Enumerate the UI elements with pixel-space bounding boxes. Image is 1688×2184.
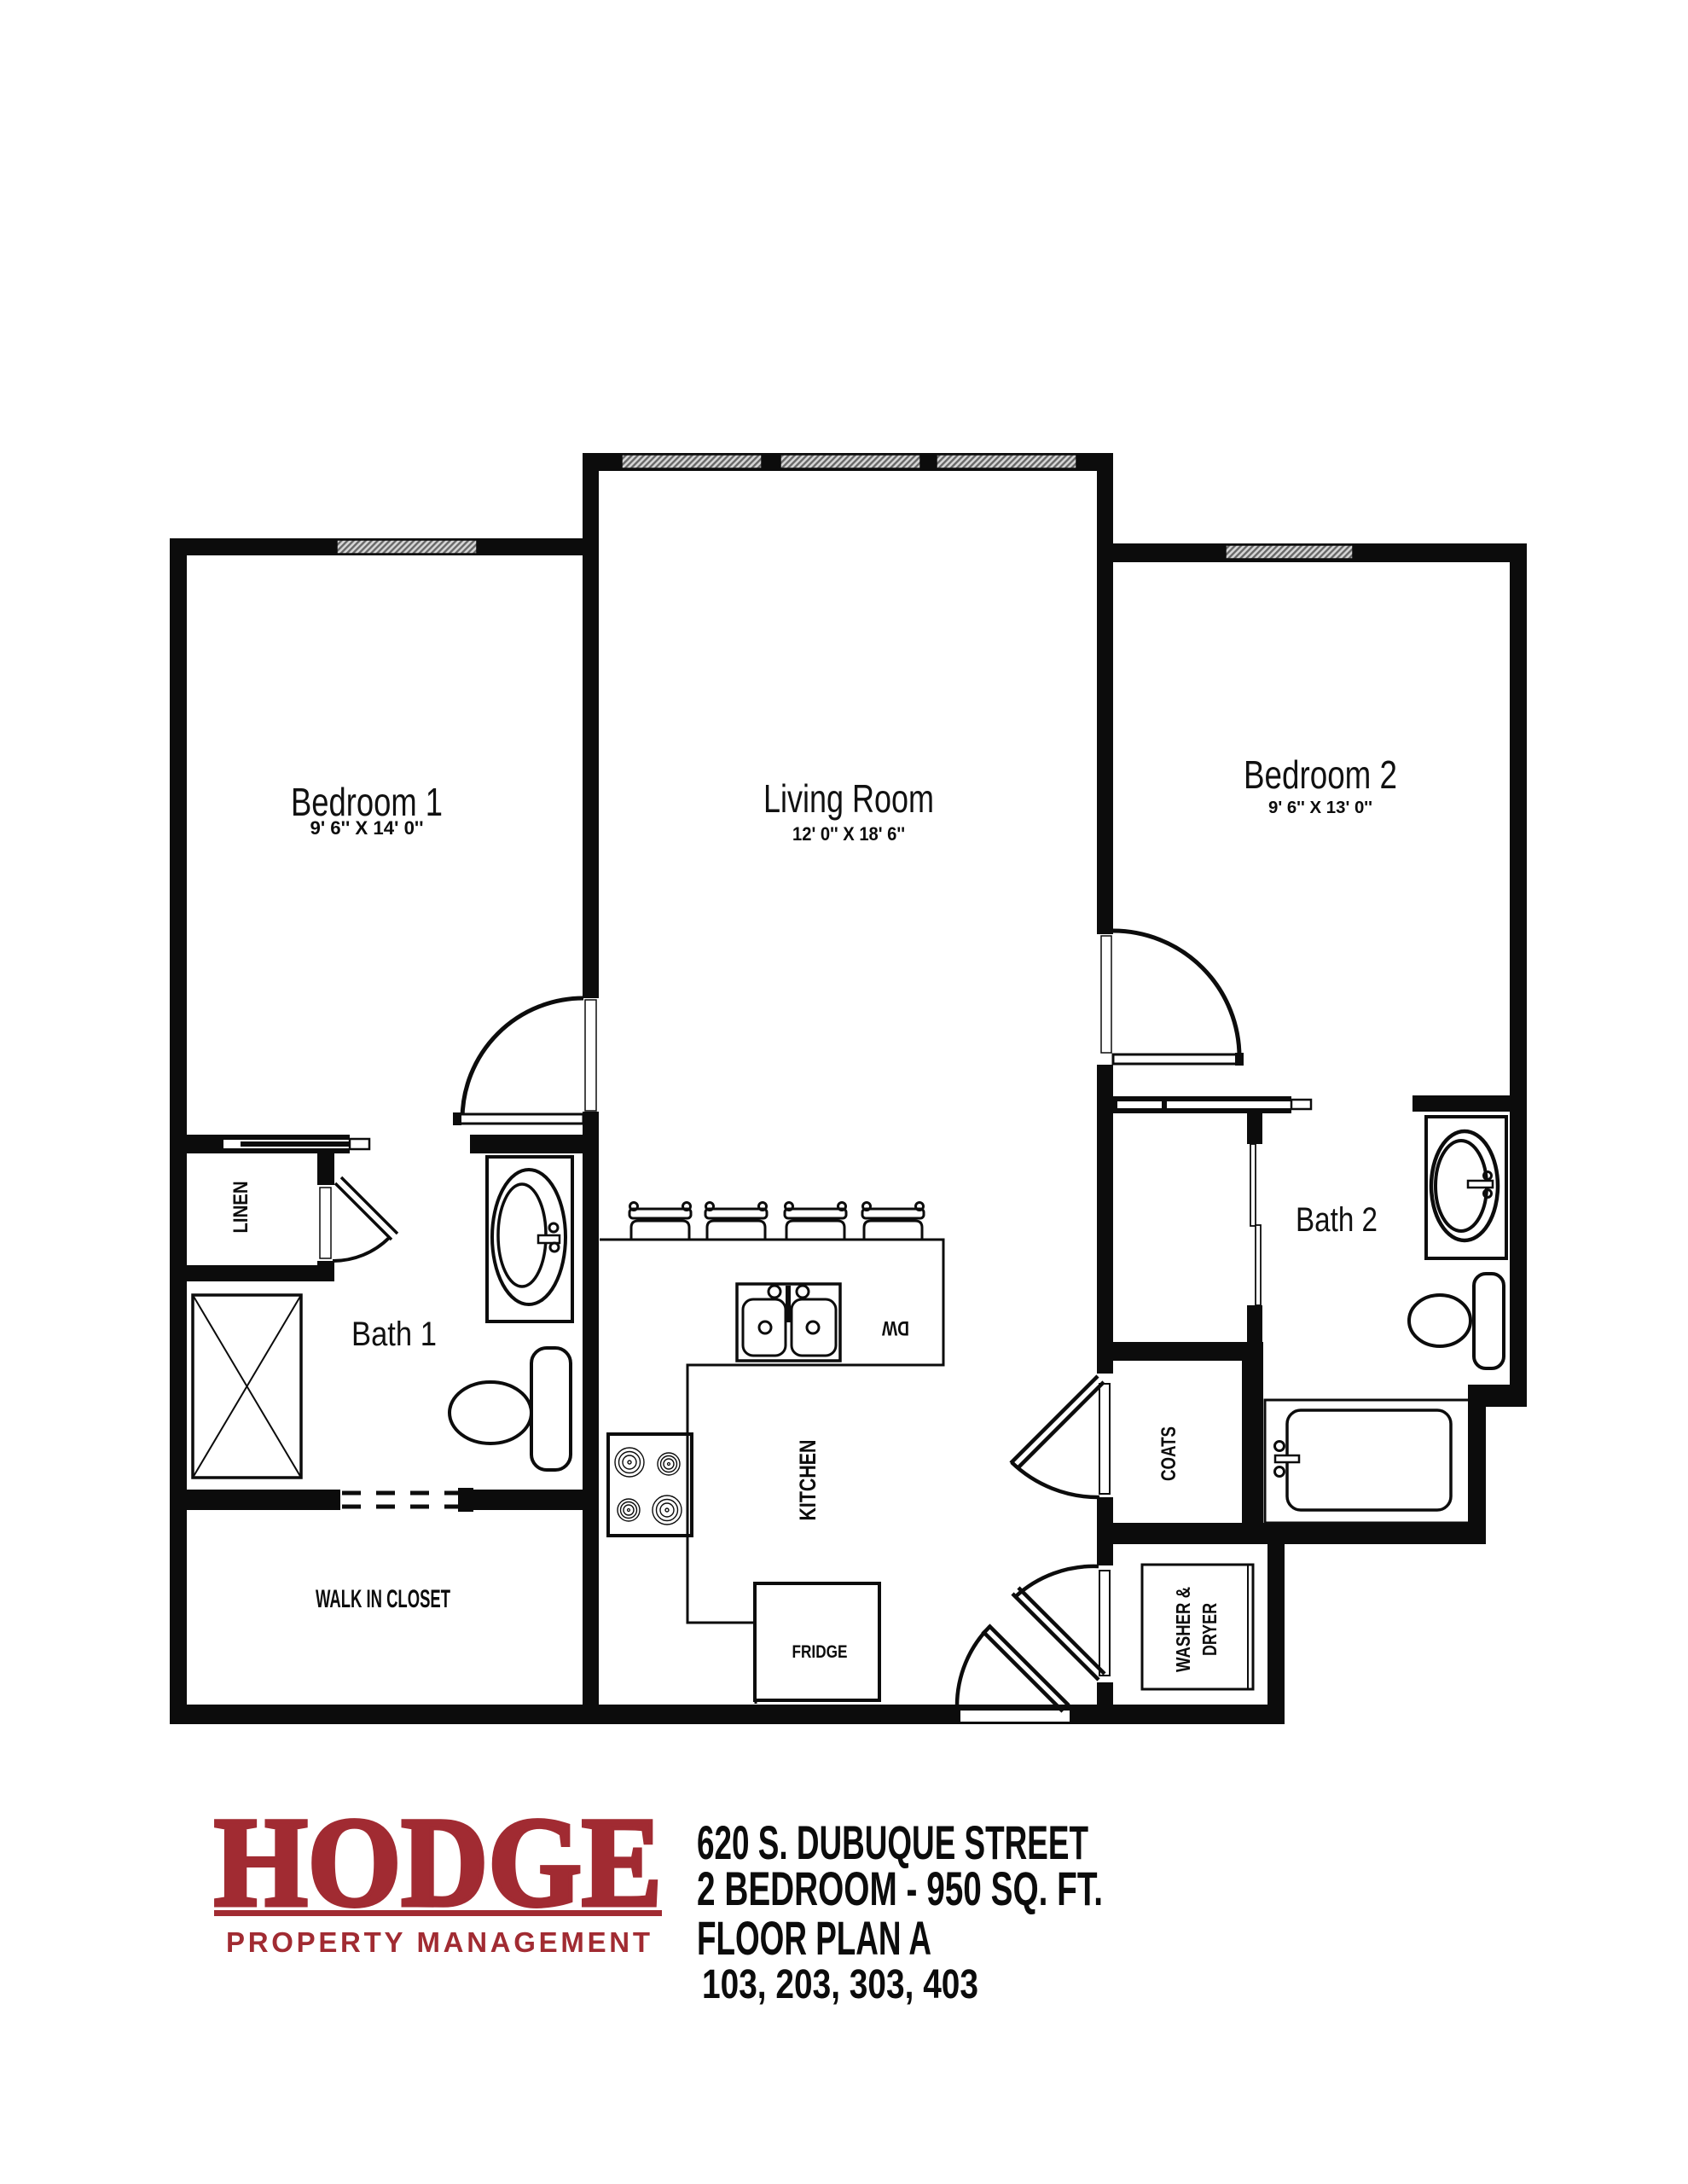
- svg-text:103, 203, 303, 403: 103, 203, 303, 403: [702, 1962, 978, 2007]
- svg-text:Living Room: Living Room: [763, 776, 934, 821]
- svg-text:DW: DW: [882, 1316, 909, 1339]
- svg-text:9' 6'' X 13' 0'': 9' 6'' X 13' 0'': [1268, 799, 1372, 817]
- svg-text:WASHER &: WASHER &: [1172, 1587, 1194, 1672]
- svg-text:KITCHEN: KITCHEN: [795, 1440, 821, 1521]
- svg-text:2 BEDROOM - 950 SQ. FT.: 2 BEDROOM - 950 SQ. FT.: [697, 1862, 1103, 1915]
- svg-text:LINEN: LINEN: [229, 1182, 252, 1234]
- svg-text:FRIDGE: FRIDGE: [792, 1642, 848, 1662]
- svg-text:WALK IN CLOSET: WALK IN CLOSET: [316, 1585, 450, 1613]
- svg-text:Bath 1: Bath 1: [351, 1316, 437, 1353]
- svg-text:FLOOR PLAN A: FLOOR PLAN A: [697, 1911, 931, 1965]
- svg-text:12' 0'' X 18' 6'': 12' 0'' X 18' 6'': [792, 823, 905, 845]
- svg-text:COATS: COATS: [1157, 1426, 1180, 1481]
- svg-text:DRYER: DRYER: [1198, 1603, 1221, 1656]
- svg-text:9' 6'' X 14' 0'': 9' 6'' X 14' 0'': [310, 817, 424, 839]
- svg-text:Bedroom 2: Bedroom 2: [1244, 752, 1397, 797]
- svg-text:Bath 2: Bath 2: [1296, 1201, 1378, 1239]
